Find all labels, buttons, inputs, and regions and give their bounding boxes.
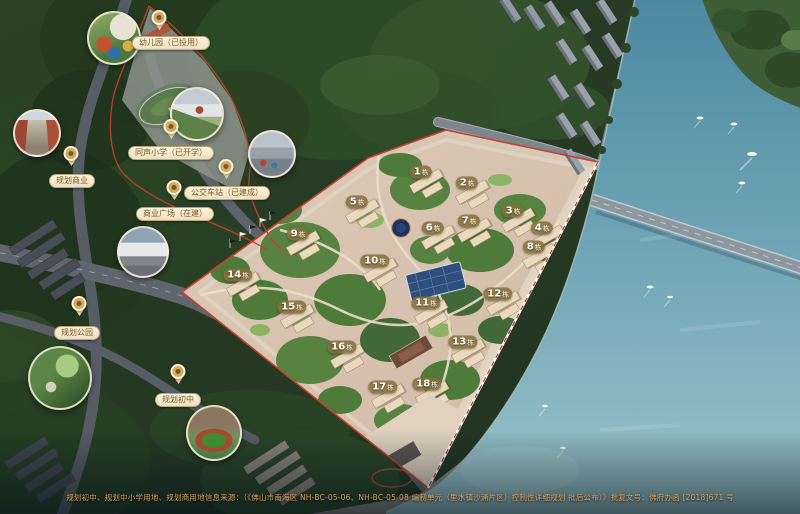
building-badge-18: 18栋 — [412, 378, 441, 391]
building-suffix: 栋 — [387, 382, 394, 392]
building-suffix: 栋 — [422, 167, 429, 177]
building-suffix: 栋 — [379, 256, 386, 266]
building-suffix: 栋 — [242, 270, 249, 280]
pin-head-icon — [171, 364, 186, 379]
building-suffix: 栋 — [431, 379, 438, 389]
building-number: 3 — [506, 206, 513, 217]
building-badge-8: 8栋 — [523, 241, 545, 254]
poi-pin-icon-planned-park — [72, 296, 87, 316]
building-badge-4: 4栋 — [531, 222, 553, 235]
poi-label-planned-commercial: 规划商业 — [49, 174, 95, 188]
building-number: 14 — [227, 270, 241, 281]
building-badge-1: 1栋 — [410, 166, 432, 179]
building-number: 13 — [452, 337, 466, 348]
poi-label-bus-station: 公交车站（已建成） — [184, 186, 270, 200]
building-number: 6 — [426, 223, 433, 234]
building-number: 17 — [372, 382, 386, 393]
building-badge-6: 6栋 — [422, 222, 444, 235]
building-badge-11: 11栋 — [411, 297, 440, 310]
building-badge-12: 12栋 — [483, 288, 512, 301]
poi-photo-planned-park — [28, 346, 92, 410]
building-number: 4 — [535, 223, 542, 234]
masterplan-aerial-image: 幼儿园（已投用）规划商业同声小学（已开学）公交车站（已建成）商业广场（在建）规划… — [0, 0, 800, 514]
building-suffix: 栋 — [296, 302, 303, 312]
poi-pin-icon-commercial-plaza — [167, 180, 182, 200]
pin-head-icon — [164, 119, 179, 134]
building-badge-5: 5栋 — [346, 196, 368, 209]
building-number: 7 — [462, 216, 469, 227]
poi-label-commercial-plaza: 商业广场（在建） — [136, 207, 214, 221]
building-badge-10: 10栋 — [360, 255, 389, 268]
building-badge-7: 7栋 — [458, 215, 480, 228]
poi-label-kindergarten: 幼儿园（已投用） — [132, 36, 210, 50]
building-number: 9 — [291, 229, 298, 240]
building-number: 11 — [415, 298, 429, 309]
building-suffix: 栋 — [502, 289, 509, 299]
pin-head-icon — [72, 296, 87, 311]
poi-photo-planned-commercial — [13, 109, 61, 157]
building-number: 18 — [416, 379, 430, 390]
building-badge-13: 13栋 — [448, 336, 477, 349]
building-suffix: 栋 — [535, 242, 542, 252]
building-suffix: 栋 — [358, 197, 365, 207]
poi-pin-icon-bus-station — [219, 159, 234, 179]
building-number: 5 — [350, 197, 357, 208]
poi-pin-icon-planned-commercial — [64, 146, 79, 166]
marker-layer: 幼儿园（已投用）规划商业同声小学（已开学）公交车站（已建成）商业广场（在建）规划… — [0, 0, 800, 514]
building-badge-9: 9栋 — [287, 228, 309, 241]
building-number: 16 — [331, 342, 345, 353]
building-badge-17: 17栋 — [368, 381, 397, 394]
disclaimer-text: 规划初中、规划中小学用地、规划商用地信息来源：（《佛山市南海区 NH-BC-05… — [66, 492, 734, 503]
building-suffix: 栋 — [346, 342, 353, 352]
building-suffix: 栋 — [514, 206, 521, 216]
building-suffix: 栋 — [299, 229, 306, 239]
poi-pin-icon-primary-school — [164, 119, 179, 139]
building-suffix: 栋 — [434, 223, 441, 233]
poi-photo-bus-station — [248, 130, 296, 178]
poi-label-planned-park: 规划公园 — [54, 326, 100, 340]
building-badge-2: 2栋 — [456, 177, 478, 190]
pin-head-icon — [167, 180, 182, 195]
building-number: 15 — [281, 302, 295, 313]
building-suffix: 栋 — [468, 178, 475, 188]
pin-head-icon — [152, 10, 167, 25]
building-number: 1 — [414, 167, 421, 178]
pin-head-icon — [219, 159, 234, 174]
building-badge-15: 15栋 — [277, 301, 306, 314]
poi-photo-commercial-plaza — [117, 226, 169, 278]
poi-photo-planned-junior-high — [186, 405, 242, 461]
pin-head-icon — [64, 146, 79, 161]
building-number: 10 — [364, 256, 378, 267]
building-badge-3: 3栋 — [502, 205, 524, 218]
building-badge-16: 16栋 — [327, 341, 356, 354]
poi-label-planned-junior-high: 规划初中 — [155, 393, 201, 407]
building-badge-14: 14栋 — [223, 269, 252, 282]
poi-pin-icon-planned-junior-high — [171, 364, 186, 384]
building-number: 12 — [487, 289, 501, 300]
poi-label-primary-school: 同声小学（已开学） — [128, 146, 214, 160]
building-number: 8 — [527, 242, 534, 253]
building-suffix: 栋 — [430, 298, 437, 308]
building-suffix: 栋 — [470, 216, 477, 226]
building-suffix: 栋 — [543, 223, 550, 233]
building-suffix: 栋 — [467, 337, 474, 347]
building-number: 2 — [460, 178, 467, 189]
poi-pin-icon-kindergarten — [152, 10, 167, 30]
